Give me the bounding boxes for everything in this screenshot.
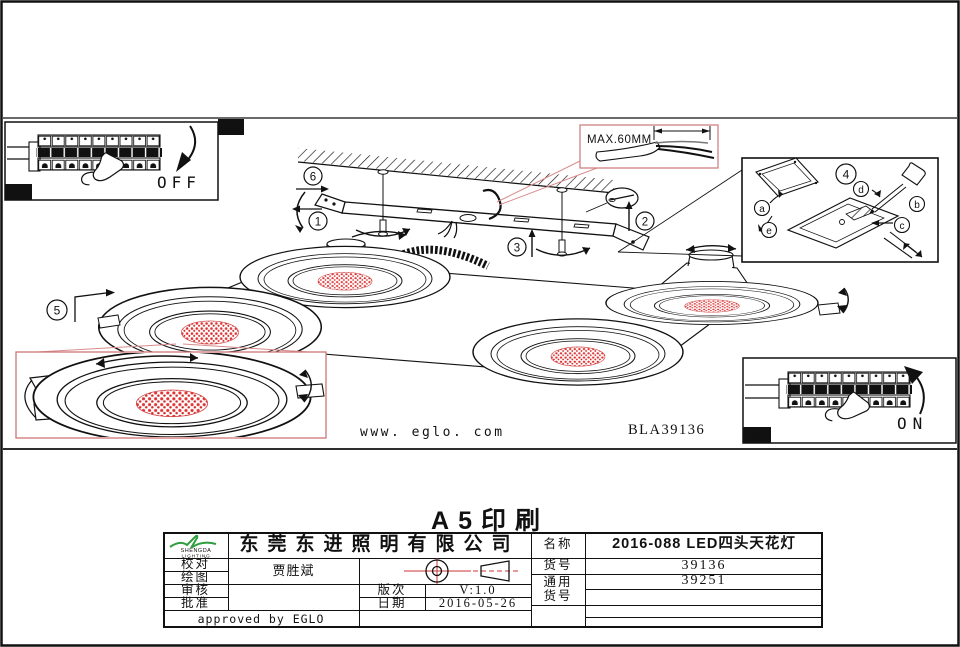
item-no-label: 货号 xyxy=(531,558,585,574)
wiring-detail-box: 4 a b c d e xyxy=(742,158,938,262)
panel-b-letter: B xyxy=(227,121,235,135)
breaker-strip xyxy=(29,135,162,171)
wire-e-callout: e xyxy=(762,223,777,238)
wire-c-callout: c xyxy=(895,218,910,233)
drafter-name: 贾胜斌 xyxy=(228,558,359,584)
off-label: OFF xyxy=(157,173,201,192)
product-name: 2016-088 LED四头天花灯 xyxy=(585,532,823,558)
panel-c-switch-on: ON C xyxy=(743,358,956,443)
svg-text:1: 1 xyxy=(315,217,321,229)
lamp-head-zoom-box xyxy=(16,344,326,443)
step-2-callout: 2 xyxy=(626,201,655,231)
ceiling-hatch xyxy=(298,148,614,192)
svg-text:a: a xyxy=(759,204,765,215)
lamp-head-3 xyxy=(473,319,683,385)
svg-text:5: 5 xyxy=(54,304,61,318)
max-60mm-label: MAX.60MM xyxy=(587,134,652,146)
step-6-callout: 6 xyxy=(296,167,329,193)
panel-a-switch-off: OFF A xyxy=(5,122,218,200)
on-label: ON xyxy=(897,414,928,433)
website-text: www. eglo. com xyxy=(360,425,505,440)
svg-text:6: 6 xyxy=(310,172,316,184)
approved-by: approved by EGLO xyxy=(163,610,359,628)
date-value: 2016-05-26 xyxy=(425,597,531,610)
shengda-logo-icon: SHENGDA LIGHTING xyxy=(164,533,227,558)
svg-text:2: 2 xyxy=(642,217,648,229)
wire-b-callout: b xyxy=(910,197,925,212)
first-angle-projection-icon xyxy=(359,558,531,584)
wire-a-callout: a xyxy=(755,201,770,216)
panel-c-letter: C xyxy=(753,429,761,443)
item-no-value: 39136 xyxy=(585,558,823,574)
name-label: 名称 xyxy=(531,532,585,558)
svg-text:4: 4 xyxy=(843,168,850,182)
panel-b-bracket: B xyxy=(218,119,718,257)
model-code-text: BLA39136 xyxy=(628,422,705,438)
step-4-callout: 4 xyxy=(836,164,856,184)
row-label-approve: 批准 xyxy=(163,597,228,610)
tab-head4 xyxy=(818,303,840,315)
wire-d-callout: d xyxy=(854,182,869,197)
svg-text:e: e xyxy=(766,226,772,237)
svg-text:b: b xyxy=(914,200,920,211)
lamp-head-4 xyxy=(606,281,818,324)
instruction-sheet: OFF A B xyxy=(0,0,960,647)
logo: SHENGDA LIGHTING xyxy=(163,532,228,558)
svg-text:c: c xyxy=(900,221,905,232)
svg-text:SHENGDA: SHENGDA xyxy=(181,548,212,554)
common-no-label: 通用 货号 xyxy=(531,574,585,605)
projection-symbol xyxy=(359,558,531,584)
svg-text:d: d xyxy=(858,185,864,196)
company-name: 东莞东进照明有限公司 xyxy=(228,532,531,558)
step-3-callout: 3 xyxy=(508,229,536,257)
panel-a-letter: A xyxy=(14,186,23,200)
lamp-head-zoom xyxy=(33,351,310,442)
common-no-value: 39251 xyxy=(585,574,823,589)
date-label: 日期 xyxy=(359,597,425,610)
svg-text:3: 3 xyxy=(514,243,520,255)
mains-wires xyxy=(438,221,457,238)
